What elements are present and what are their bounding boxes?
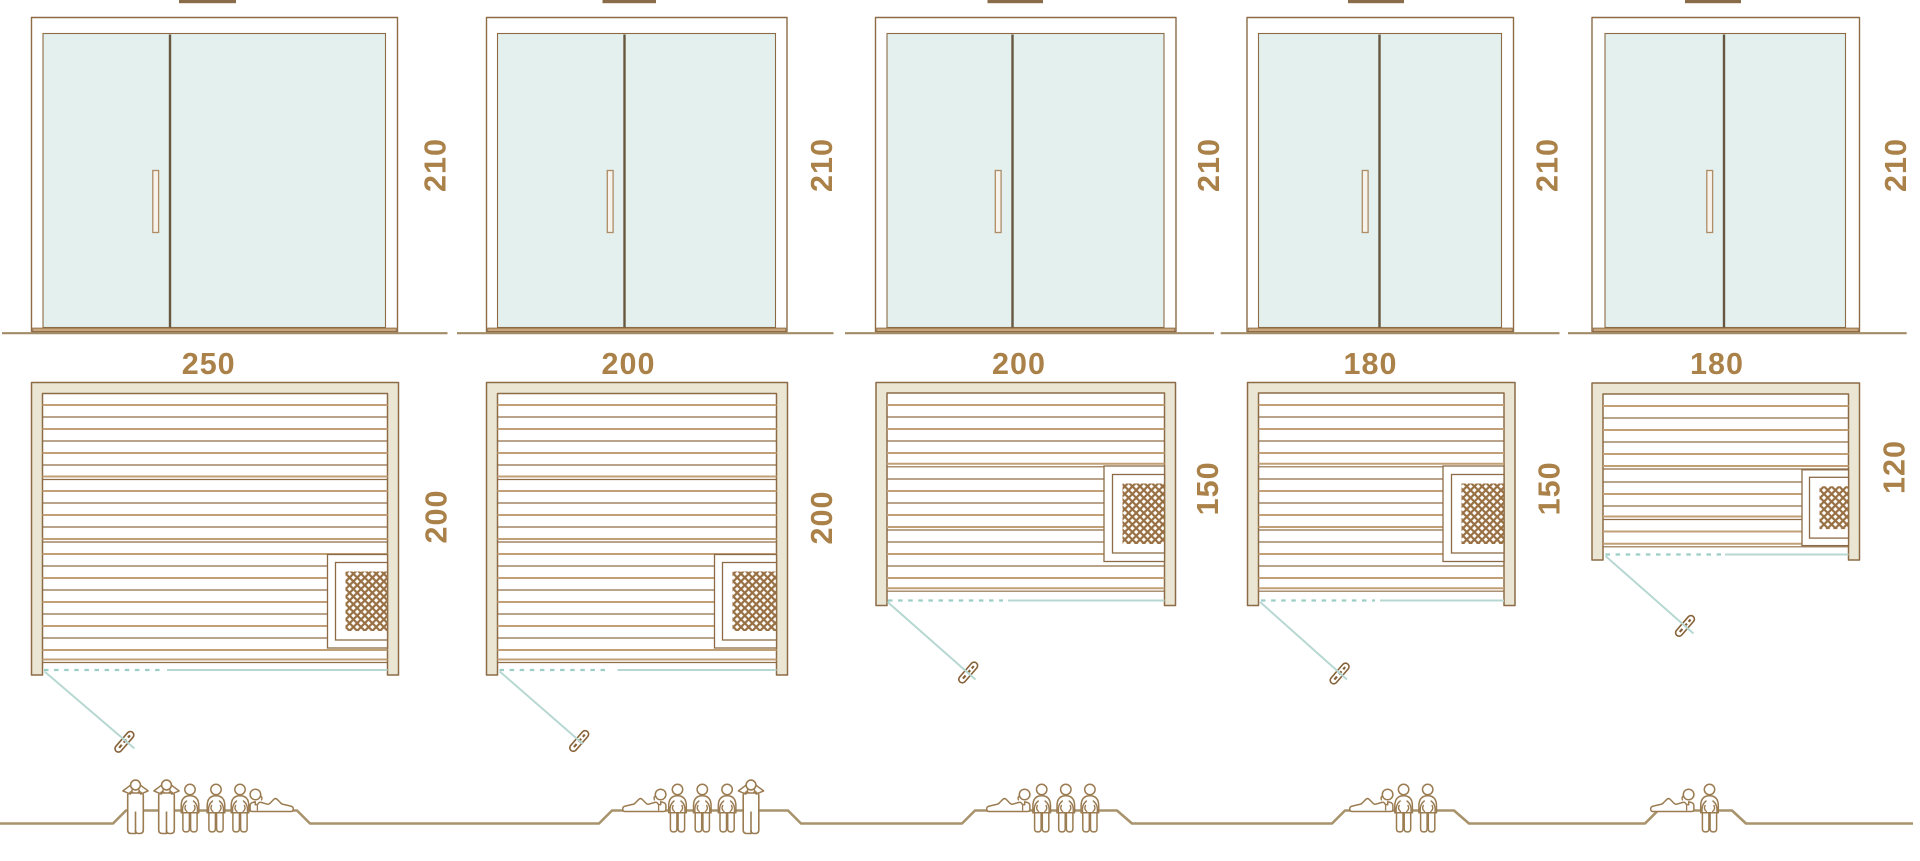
- svg-text:210: 210: [1879, 138, 1913, 192]
- svg-text:250: 250: [182, 347, 236, 381]
- svg-text:150: 150: [1191, 461, 1225, 515]
- svg-text:200: 200: [419, 490, 453, 544]
- svg-text:120: 120: [1878, 440, 1912, 494]
- svg-text:210: 210: [1192, 138, 1226, 192]
- svg-text:210: 210: [1531, 138, 1565, 192]
- svg-text:180: 180: [1344, 347, 1398, 381]
- svg-text:150: 150: [1532, 461, 1566, 515]
- svg-text:210: 210: [419, 138, 453, 192]
- svg-text:200: 200: [602, 347, 656, 381]
- svg-text:200: 200: [992, 347, 1046, 381]
- svg-text:210: 210: [805, 138, 839, 192]
- svg-text:200: 200: [805, 491, 839, 545]
- svg-text:180: 180: [1690, 347, 1744, 381]
